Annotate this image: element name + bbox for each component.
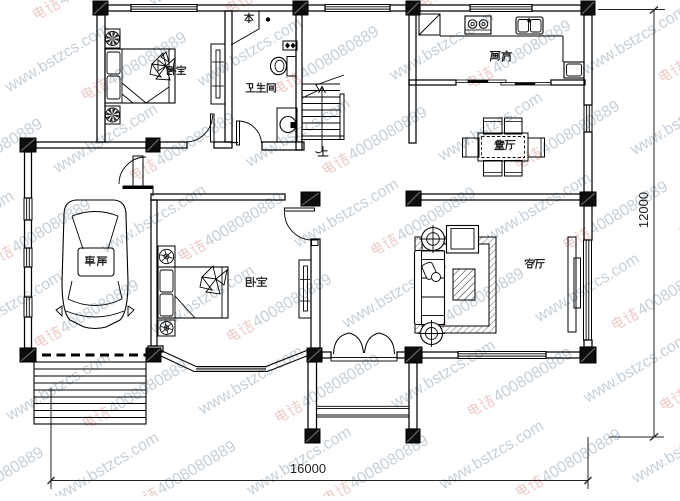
svg-text:12000: 12000 — [636, 192, 651, 228]
svg-text:16000: 16000 — [290, 461, 326, 476]
